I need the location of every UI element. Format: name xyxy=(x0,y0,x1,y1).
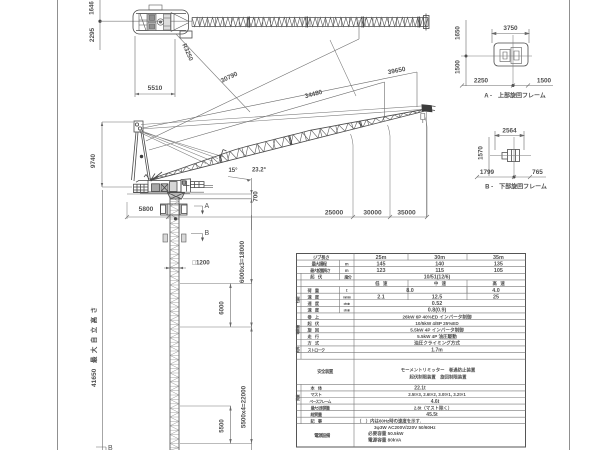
svg-text:旋 回: 旋 回 xyxy=(306,326,318,333)
svg-text:5500: 5500 xyxy=(220,419,226,433)
svg-text:0.8(0.9): 0.8(0.9) xyxy=(428,308,447,314)
svg-text:140: 140 xyxy=(435,261,444,267)
svg-text:2.5t×3, 2.6t×2, 3.0t×1, 3.2t×1: 2.5t×3, 2.6t×2, 3.0t×1, 3.2t×1 xyxy=(408,392,466,397)
svg-text:低 速: 低 速 xyxy=(374,280,388,287)
svg-text:2.1: 2.1 xyxy=(377,294,385,300)
svg-text:度/分: 度/分 xyxy=(344,275,352,280)
svg-text:700: 700 xyxy=(253,191,260,202)
svg-text:35000: 35000 xyxy=(397,210,416,217)
svg-text:135: 135 xyxy=(494,261,503,267)
svg-text:8.0: 8.0 xyxy=(406,288,414,294)
svg-text:10/5kW 4/8P 25%ED: 10/5kW 4/8P 25%ED xyxy=(415,321,459,326)
svg-text:5510: 5510 xyxy=(148,85,163,92)
svg-text:起 伏: 起 伏 xyxy=(306,320,319,327)
svg-text:必要容量 50.5kW: 必要容量 50.5kW xyxy=(367,430,404,437)
svg-text:m/min: m/min xyxy=(343,295,351,299)
svg-text:B - 下部旋回フレーム: B - 下部旋回フレーム xyxy=(485,183,547,191)
svg-text:115: 115 xyxy=(435,268,444,274)
svg-text:25: 25 xyxy=(493,294,499,300)
svg-text:5800: 5800 xyxy=(139,206,154,213)
svg-text:最大設置高さ: 最大設置高さ xyxy=(310,267,330,273)
svg-text:30000: 30000 xyxy=(363,210,382,217)
svg-text:荷 重: 荷 重 xyxy=(306,287,319,294)
svg-text:2564: 2564 xyxy=(502,128,517,135)
svg-text:□1200: □1200 xyxy=(192,260,210,267)
svg-text:145: 145 xyxy=(377,261,386,267)
svg-text:r/min: r/min xyxy=(344,309,351,313)
svg-text:最大揚程: 最大揚程 xyxy=(312,260,328,267)
svg-text:総質量: 総質量 xyxy=(310,411,322,418)
svg-text:A: A xyxy=(205,203,210,210)
svg-text:30m: 30m xyxy=(434,255,445,261)
svg-text:123: 123 xyxy=(377,268,386,274)
svg-text:巻 上: 巻 上 xyxy=(306,313,319,320)
svg-text:ジブ長さ: ジブ長さ xyxy=(313,254,330,261)
svg-text:A - 上部旋回フレーム: A - 上部旋回フレーム xyxy=(484,92,546,100)
svg-text:41650: 41650 xyxy=(91,368,98,387)
svg-text:2.8t（マスト除く）: 2.8t（マスト除く） xyxy=(414,404,452,411)
svg-text:記 事: 記 事 xyxy=(310,417,322,424)
svg-text:速 度: 速 度 xyxy=(307,307,319,314)
svg-text:23.2°: 23.2° xyxy=(252,168,267,174)
svg-text:B: B xyxy=(108,445,113,450)
svg-text:電源設備: 電源設備 xyxy=(314,432,331,439)
svg-text:1.7m: 1.7m xyxy=(431,347,443,353)
svg-text:性能: 性能 xyxy=(295,296,300,304)
svg-text:質量: 質量 xyxy=(295,394,300,401)
svg-text:モーメントリミッター 巻過防止装置: モーメントリミッター 巻過防止装置 xyxy=(401,367,476,374)
svg-text:5.5kW 4P 油圧駆動: 5.5kW 4P 油圧駆動 xyxy=(417,333,457,340)
svg-text:最大分割質量: 最大分割質量 xyxy=(311,405,330,410)
svg-text:B: B xyxy=(205,230,210,237)
svg-text:起伏制限装置 旋回制限装置: 起伏制限装置 旋回制限装置 xyxy=(408,374,467,381)
svg-text:5500x4=22000: 5500x4=22000 xyxy=(241,385,248,428)
svg-text:10/51(12/6): 10/51(12/6) xyxy=(424,275,451,281)
svg-text:起 伏: 起 伏 xyxy=(309,274,323,281)
svg-text:安全装置: 安全装置 xyxy=(317,368,334,375)
svg-text:電源容量 80kVA: 電源容量 80kVA xyxy=(368,437,402,444)
svg-text:速 度: 速 度 xyxy=(307,293,319,300)
svg-text:3750: 3750 xyxy=(503,25,518,32)
svg-text:最大自立高さ: 最大自立高さ xyxy=(89,304,98,363)
svg-text:3φ3W AC200V/220V 50/60Hz: 3φ3W AC200V/220V 50/60Hz xyxy=(374,425,436,430)
svg-text:2250: 2250 xyxy=(474,78,489,85)
svg-text:速 度: 速 度 xyxy=(307,300,319,307)
svg-text:（ ）内は60Hz時の速度を示す.: （ ）内は60Hz時の速度を示す. xyxy=(357,417,421,424)
svg-text:1500: 1500 xyxy=(537,78,552,85)
svg-text:電動機: 電動機 xyxy=(295,324,300,334)
svg-text:765: 765 xyxy=(532,169,543,176)
svg-text:5.5kW 4P インバータ制御: 5.5kW 4P インバータ制御 xyxy=(410,326,464,333)
svg-text:1570: 1570 xyxy=(478,146,485,160)
svg-text:1500: 1500 xyxy=(455,60,462,74)
svg-text:15°: 15° xyxy=(228,168,238,174)
svg-text:1799: 1799 xyxy=(480,169,495,176)
svg-text:方 式: 方 式 xyxy=(307,340,319,347)
svg-text:25m: 25m xyxy=(376,255,387,261)
svg-text:26kW 6P 40%ED インバータ制御: 26kW 6P 40%ED インバータ制御 xyxy=(402,313,472,320)
svg-text:9740: 9740 xyxy=(90,153,97,168)
svg-text:爬昇: 爬昇 xyxy=(295,346,300,354)
svg-text:油圧クライミング方式: 油圧クライミング方式 xyxy=(414,340,460,347)
svg-text:中 速: 中 速 xyxy=(434,280,447,287)
svg-text:1650: 1650 xyxy=(455,26,462,40)
svg-text:m: m xyxy=(345,268,349,273)
svg-text:105: 105 xyxy=(494,268,503,274)
svg-text:ストローク: ストローク xyxy=(308,346,326,352)
svg-text:1646: 1646 xyxy=(89,1,96,15)
svg-text:45.5t: 45.5t xyxy=(426,412,438,418)
svg-text:走 行: 走 行 xyxy=(307,333,319,340)
svg-text:0.52: 0.52 xyxy=(432,301,443,307)
svg-text:4.0: 4.0 xyxy=(492,288,500,294)
svg-text:r/min: r/min xyxy=(344,302,351,306)
svg-text:2295: 2295 xyxy=(89,27,96,42)
svg-text:ベースフレーム: ベースフレーム xyxy=(309,399,331,404)
svg-text:本 体: 本 体 xyxy=(309,385,322,392)
svg-text:m: m xyxy=(345,261,349,266)
svg-text:22.1t: 22.1t xyxy=(414,386,426,392)
svg-text:25000: 25000 xyxy=(325,210,344,217)
svg-text:6000: 6000 xyxy=(220,301,226,315)
svg-text:4.6t: 4.6t xyxy=(431,399,440,405)
svg-text:高 速: 高 速 xyxy=(493,280,506,287)
svg-text:6000x3=18000: 6000x3=18000 xyxy=(239,240,246,283)
svg-text:12.5: 12.5 xyxy=(432,294,443,300)
svg-text:35m: 35m xyxy=(493,255,504,261)
